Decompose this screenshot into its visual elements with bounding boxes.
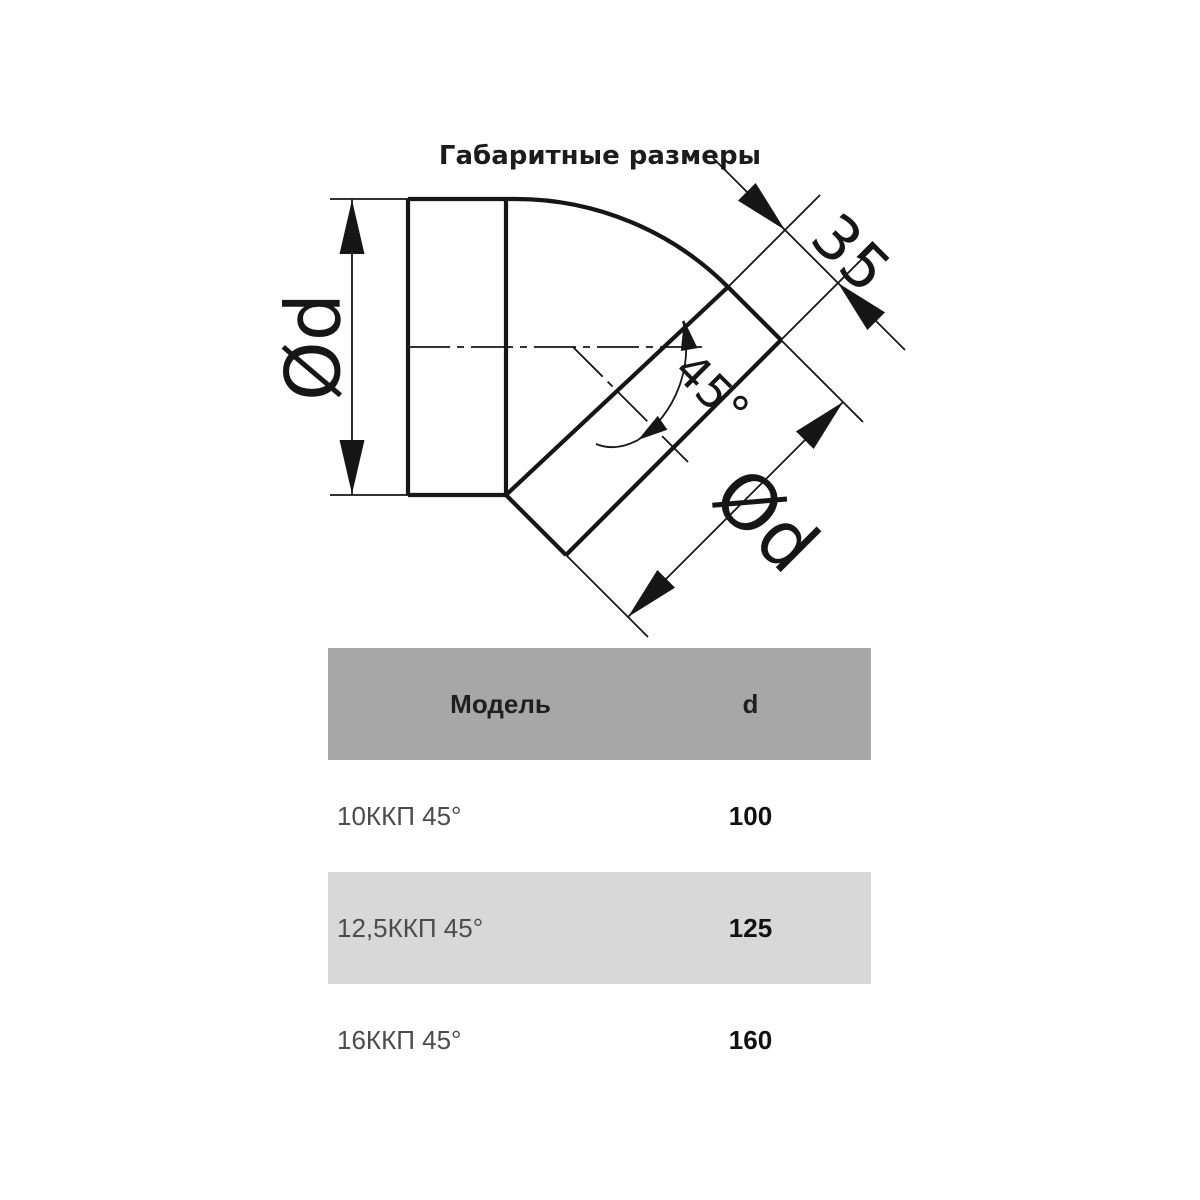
dimensions-table: Модель d 10ККП 45° 100 12,5ККП 45° 125 1… <box>328 648 871 1096</box>
outer-bend-arc <box>516 199 728 287</box>
angle-label: 45° <box>664 342 760 438</box>
model-name: 12,5ККП 45° <box>337 913 673 944</box>
arrowhead-up <box>340 200 365 254</box>
extension-line <box>781 340 863 422</box>
dimension-angle-45: 45° <box>596 319 760 448</box>
page: Габаритные размеры Ød <box>0 0 1200 1200</box>
model-name: 10ККП 45° <box>337 801 673 832</box>
collar-length-label: 35 <box>797 199 904 306</box>
outlet-outer-edge <box>728 287 781 340</box>
model-d-value: 125 <box>673 913 828 944</box>
table-header-row: Модель d <box>328 648 871 760</box>
table-row: 10ККП 45° 100 <box>328 760 871 872</box>
header-d: d <box>673 689 828 720</box>
header-model: Модель <box>328 689 673 720</box>
dimension-inlet-diameter: Ød <box>269 199 411 495</box>
angle-arc-tail <box>596 440 638 447</box>
dimension-collar-35: 35 <box>713 158 905 350</box>
dimension-drawing: Ød 35 45° Ød <box>0 0 1200 660</box>
table-row: 16ККП 45° 160 <box>328 984 871 1096</box>
model-d-value: 160 <box>673 1025 828 1056</box>
model-name: 16ККП 45° <box>337 1025 673 1056</box>
extension-line <box>566 555 648 637</box>
table-row: 12,5ККП 45° 125 <box>328 872 871 984</box>
inlet-diameter-label: Ød <box>269 293 358 401</box>
outlet-inner-edge <box>506 495 566 555</box>
model-d-value: 100 <box>673 801 828 832</box>
outlet-diameter-label: Ød <box>696 450 835 589</box>
arrowhead-down <box>340 440 365 494</box>
arrowhead-arc-bottom <box>633 416 667 447</box>
